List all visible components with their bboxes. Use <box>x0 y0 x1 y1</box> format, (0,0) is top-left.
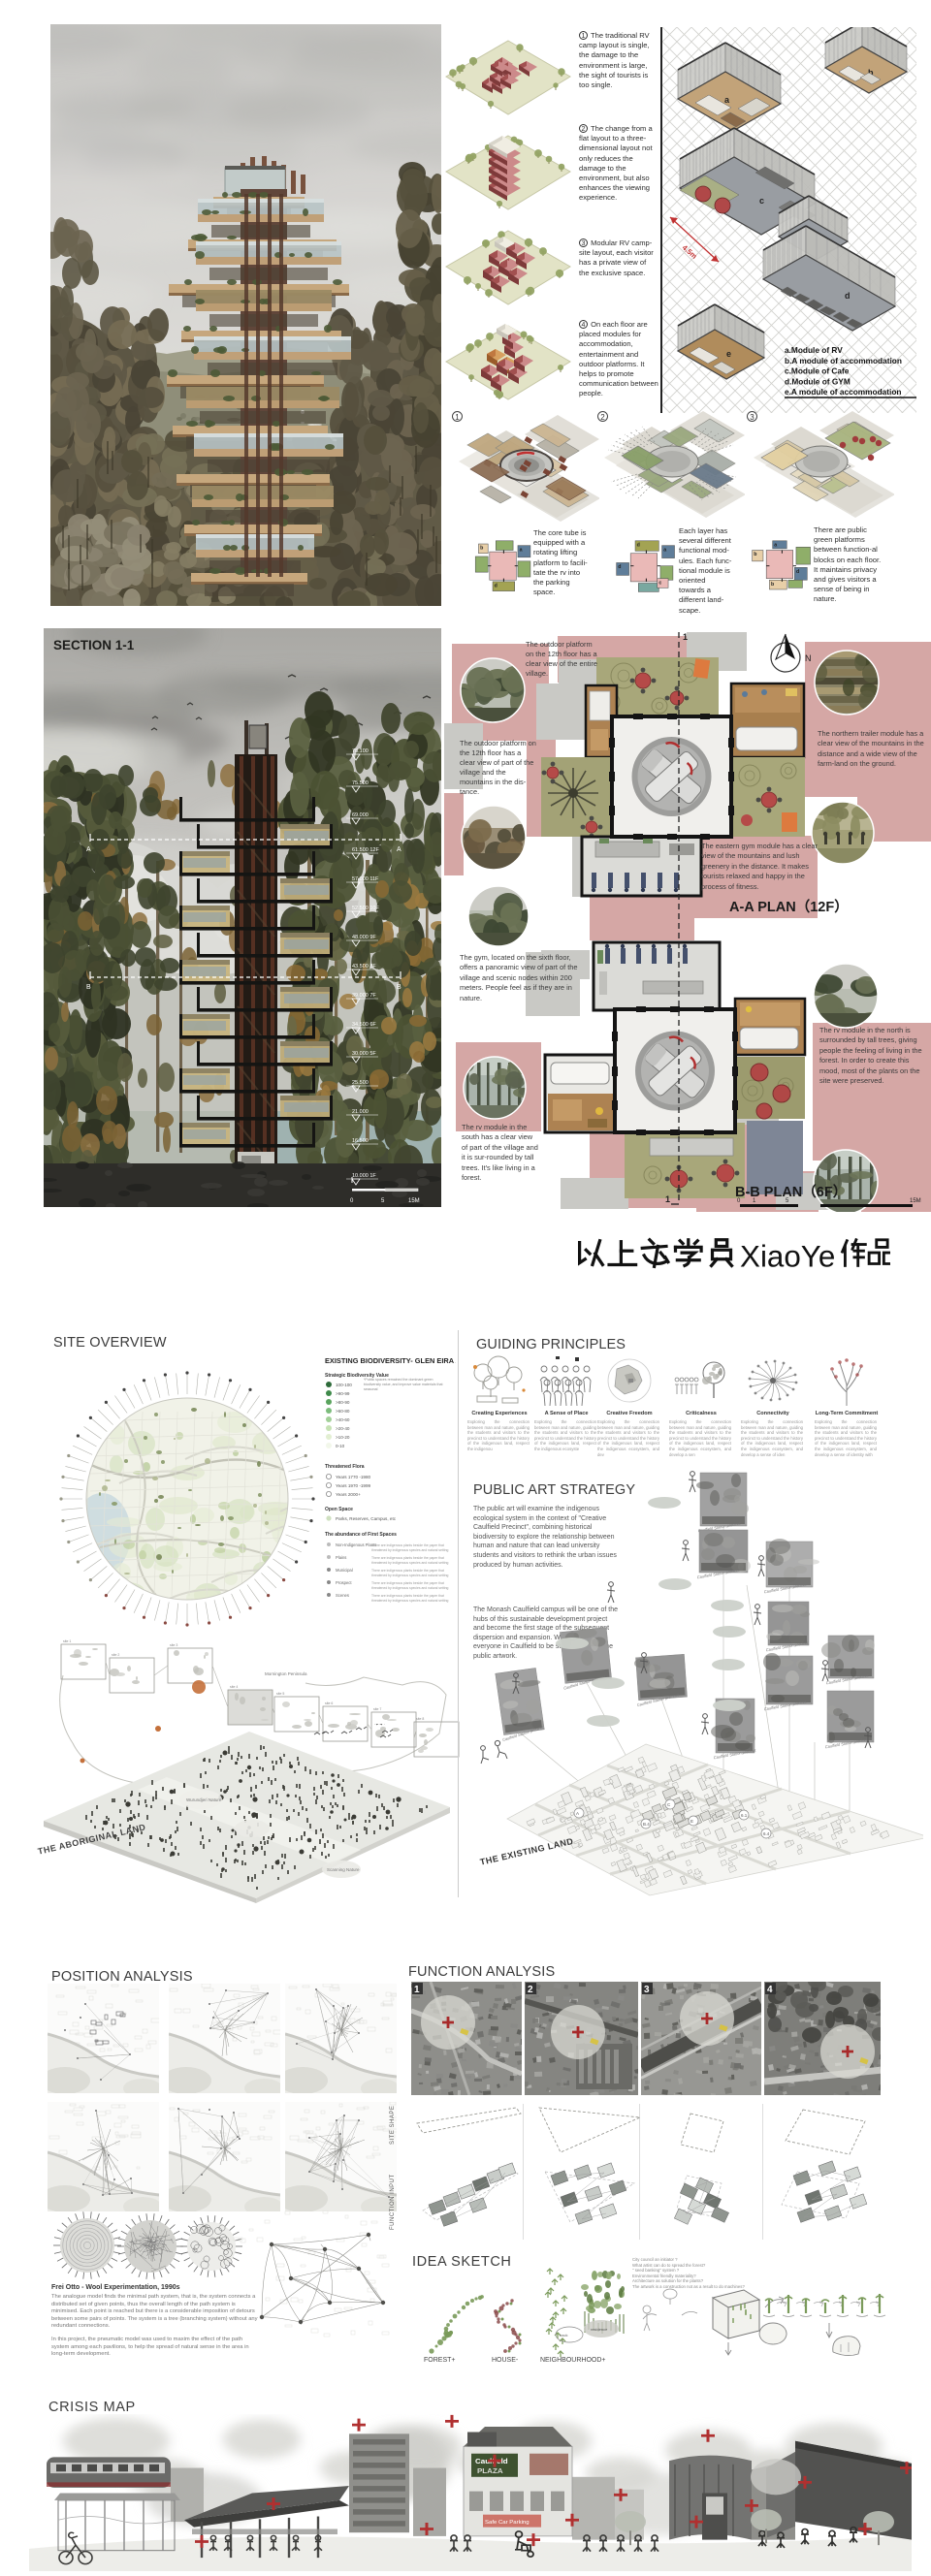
svg-text:30.000 5F: 30.000 5F <box>352 1051 376 1057</box>
svg-text:a.Module of RV: a.Module of RV <box>785 345 843 355</box>
svg-text:N: N <box>805 653 812 663</box>
svg-text:d: d <box>495 584 498 589</box>
svg-text:site 6: site 6 <box>325 1701 333 1705</box>
svg-text:d.Module of GYM: d.Module of GYM <box>785 376 851 386</box>
svg-text:b: b <box>754 552 756 557</box>
svg-text:1: 1 <box>414 1985 420 1995</box>
svg-text:A: A <box>576 1811 579 1816</box>
svg-text:>40-60: >40-60 <box>336 1417 350 1422</box>
svg-text:a: a <box>774 542 777 548</box>
svg-text:B: B <box>397 984 401 991</box>
svg-text:25.500: 25.500 <box>352 1080 369 1086</box>
svg-text:48.000 9F: 48.000 9F <box>352 935 376 940</box>
svg-text:There are indigenous plants be: There are indigenous plants beside the p… <box>371 1543 444 1547</box>
svg-text:c.Module of Cafe: c.Module of Cafe <box>785 366 850 376</box>
svg-text:There are indigenous plants be: There are indigenous plants beside the p… <box>371 1581 444 1585</box>
svg-text:e.A module of accommodation: e.A module of accommodation <box>785 387 901 397</box>
svg-text:threatened by indigenous speci: threatened by indigenous species and nat… <box>371 1574 448 1577</box>
svg-text:A-A PLAN（12F）: A-A PLAN（12F） <box>729 898 849 915</box>
svg-text:*Public spaces remained the do: *Public spaces remained the dominant gre… <box>364 1378 433 1382</box>
svg-text:Years 1970 -1999: Years 1970 -1999 <box>336 1483 371 1488</box>
svg-text:>10-20: >10-20 <box>336 1435 350 1440</box>
svg-text:78.100: 78.100 <box>352 748 369 754</box>
svg-text:There are indigenous plants be: There are indigenous plants beside the p… <box>371 1594 444 1598</box>
svg-text:b: b <box>480 546 483 552</box>
svg-text:d: d <box>637 542 640 548</box>
svg-text:Threatened Flora: Threatened Flora <box>325 1464 365 1470</box>
svg-text:site 3: site 3 <box>170 1643 177 1647</box>
svg-text:d: d <box>845 291 851 301</box>
svg-text:biodiversity value, and improv: biodiversity value, and improve value ma… <box>364 1383 443 1386</box>
svg-text:Years 2000+: Years 2000+ <box>336 1492 361 1497</box>
svg-text:Safe Car Parking: Safe Car Parking <box>485 2520 530 2526</box>
svg-text:Mornington Peninsula: Mornington Peninsula <box>265 1671 307 1676</box>
svg-text:Prospect: Prospect <box>336 1580 352 1585</box>
svg-text:15M: 15M <box>910 1198 921 1204</box>
svg-text:site 8: site 8 <box>416 1717 424 1721</box>
svg-text:There are indigenous plants be: There are indigenous plants beside the p… <box>371 1556 444 1560</box>
svg-text:The abundance of First Spaces: The abundance of First Spaces <box>325 1532 397 1538</box>
svg-text:61.500 12F: 61.500 12F <box>352 847 379 853</box>
svg-text:21.000: 21.000 <box>352 1109 369 1115</box>
svg-text:A: A <box>397 846 401 853</box>
svg-text:1: 1 <box>683 632 688 642</box>
svg-text:Municipal: Municipal <box>336 1568 353 1573</box>
svg-text:Plains: Plains <box>336 1555 346 1560</box>
svg-text:XiaoYe: XiaoYe <box>740 1239 835 1273</box>
svg-text:site 7: site 7 <box>373 1707 381 1711</box>
svg-text:EXISTING BIODIVERSITY- GLEN EI: EXISTING BIODIVERSITY- GLEN EIRA AREA <box>325 1356 456 1365</box>
svg-text:A: A <box>86 846 91 853</box>
svg-text:threatened by indigenous speci: threatened by indigenous species and nat… <box>371 1599 448 1603</box>
svg-text:There are indigenous plants be: There are indigenous plants beside the p… <box>371 1569 444 1573</box>
svg-text:c: c <box>658 580 661 586</box>
svg-text:6.1: 6.1 <box>741 1813 748 1818</box>
svg-text:residence: residence <box>591 2327 608 2332</box>
svg-text:100-100: 100-100 <box>336 1383 352 1387</box>
svg-text:0-10: 0-10 <box>336 1444 345 1448</box>
svg-text:site 1: site 1 <box>63 1639 71 1643</box>
svg-text:2: 2 <box>528 1985 533 1995</box>
svg-text:16.500: 16.500 <box>352 1138 369 1144</box>
svg-text:threatened by indigenous speci: threatened by indigenous species and nat… <box>371 1561 448 1565</box>
svg-text:52.500 10F: 52.500 10F <box>352 906 379 911</box>
svg-text:a: a <box>520 547 523 553</box>
svg-text:site 5: site 5 <box>276 1692 284 1696</box>
svg-text:34.500 6F: 34.500 6F <box>352 1022 376 1028</box>
svg-text:39.000 7F: 39.000 7F <box>352 993 376 999</box>
svg-text:69.000: 69.000 <box>352 812 369 818</box>
svg-text:Wurundjeri Nature: Wurundjeri Nature <box>186 1797 222 1802</box>
svg-text:B: B <box>86 984 91 991</box>
svg-text:E: E <box>690 1819 693 1824</box>
svg-text:c: c <box>759 196 764 206</box>
svg-text:>80-90: >80-90 <box>336 1400 350 1405</box>
svg-text:Parks, Reserves, Campus, etc: Parks, Reserves, Campus, etc <box>336 1516 397 1521</box>
svg-text:Open Space: Open Space <box>325 1507 353 1512</box>
svg-text:b: b <box>771 582 774 588</box>
svg-text:back: back <box>560 2333 567 2337</box>
svg-text:b.A module of accommodation: b.A module of accommodation <box>785 356 902 366</box>
svg-text:d: d <box>618 564 621 570</box>
svg-text:a: a <box>663 547 666 553</box>
svg-text:PLAZA: PLAZA <box>477 2466 503 2475</box>
svg-text:threatened by indigenous speci: threatened by indigenous species and nat… <box>371 1548 448 1552</box>
svg-text:6.4: 6.4 <box>763 1831 770 1836</box>
svg-text:10.000 1F: 10.000 1F <box>352 1173 376 1179</box>
svg-text:B.4: B.4 <box>643 1822 650 1827</box>
svg-text:seasonal: seasonal <box>364 1387 378 1391</box>
svg-text:>20-40: >20-40 <box>336 1426 350 1431</box>
svg-text:57.000 11F: 57.000 11F <box>352 876 379 882</box>
svg-text:Scanning Nature: Scanning Nature <box>327 1867 360 1872</box>
svg-text:d: d <box>796 569 799 575</box>
svg-text:15M: 15M <box>408 1198 420 1204</box>
svg-text:site 4: site 4 <box>230 1685 238 1689</box>
svg-text:SECTION 1-1: SECTION 1-1 <box>53 638 135 652</box>
svg-text:Scenes: Scenes <box>336 1593 349 1598</box>
svg-text:43.500 8F: 43.500 8F <box>352 964 376 970</box>
svg-text:1: 1 <box>665 1194 670 1204</box>
svg-text:>90-99: >90-99 <box>336 1391 350 1396</box>
svg-text:Years 1770 -1980: Years 1770 -1980 <box>336 1475 371 1479</box>
svg-text:75.500: 75.500 <box>352 780 369 786</box>
svg-text:4: 4 <box>767 1985 773 1995</box>
svg-text:site 2: site 2 <box>112 1653 119 1657</box>
svg-text:threatened by indigenous speci: threatened by indigenous species and nat… <box>371 1586 448 1590</box>
svg-text:3: 3 <box>644 1985 650 1995</box>
svg-text:e: e <box>726 349 731 359</box>
svg-text:>60-80: >60-80 <box>336 1409 350 1414</box>
